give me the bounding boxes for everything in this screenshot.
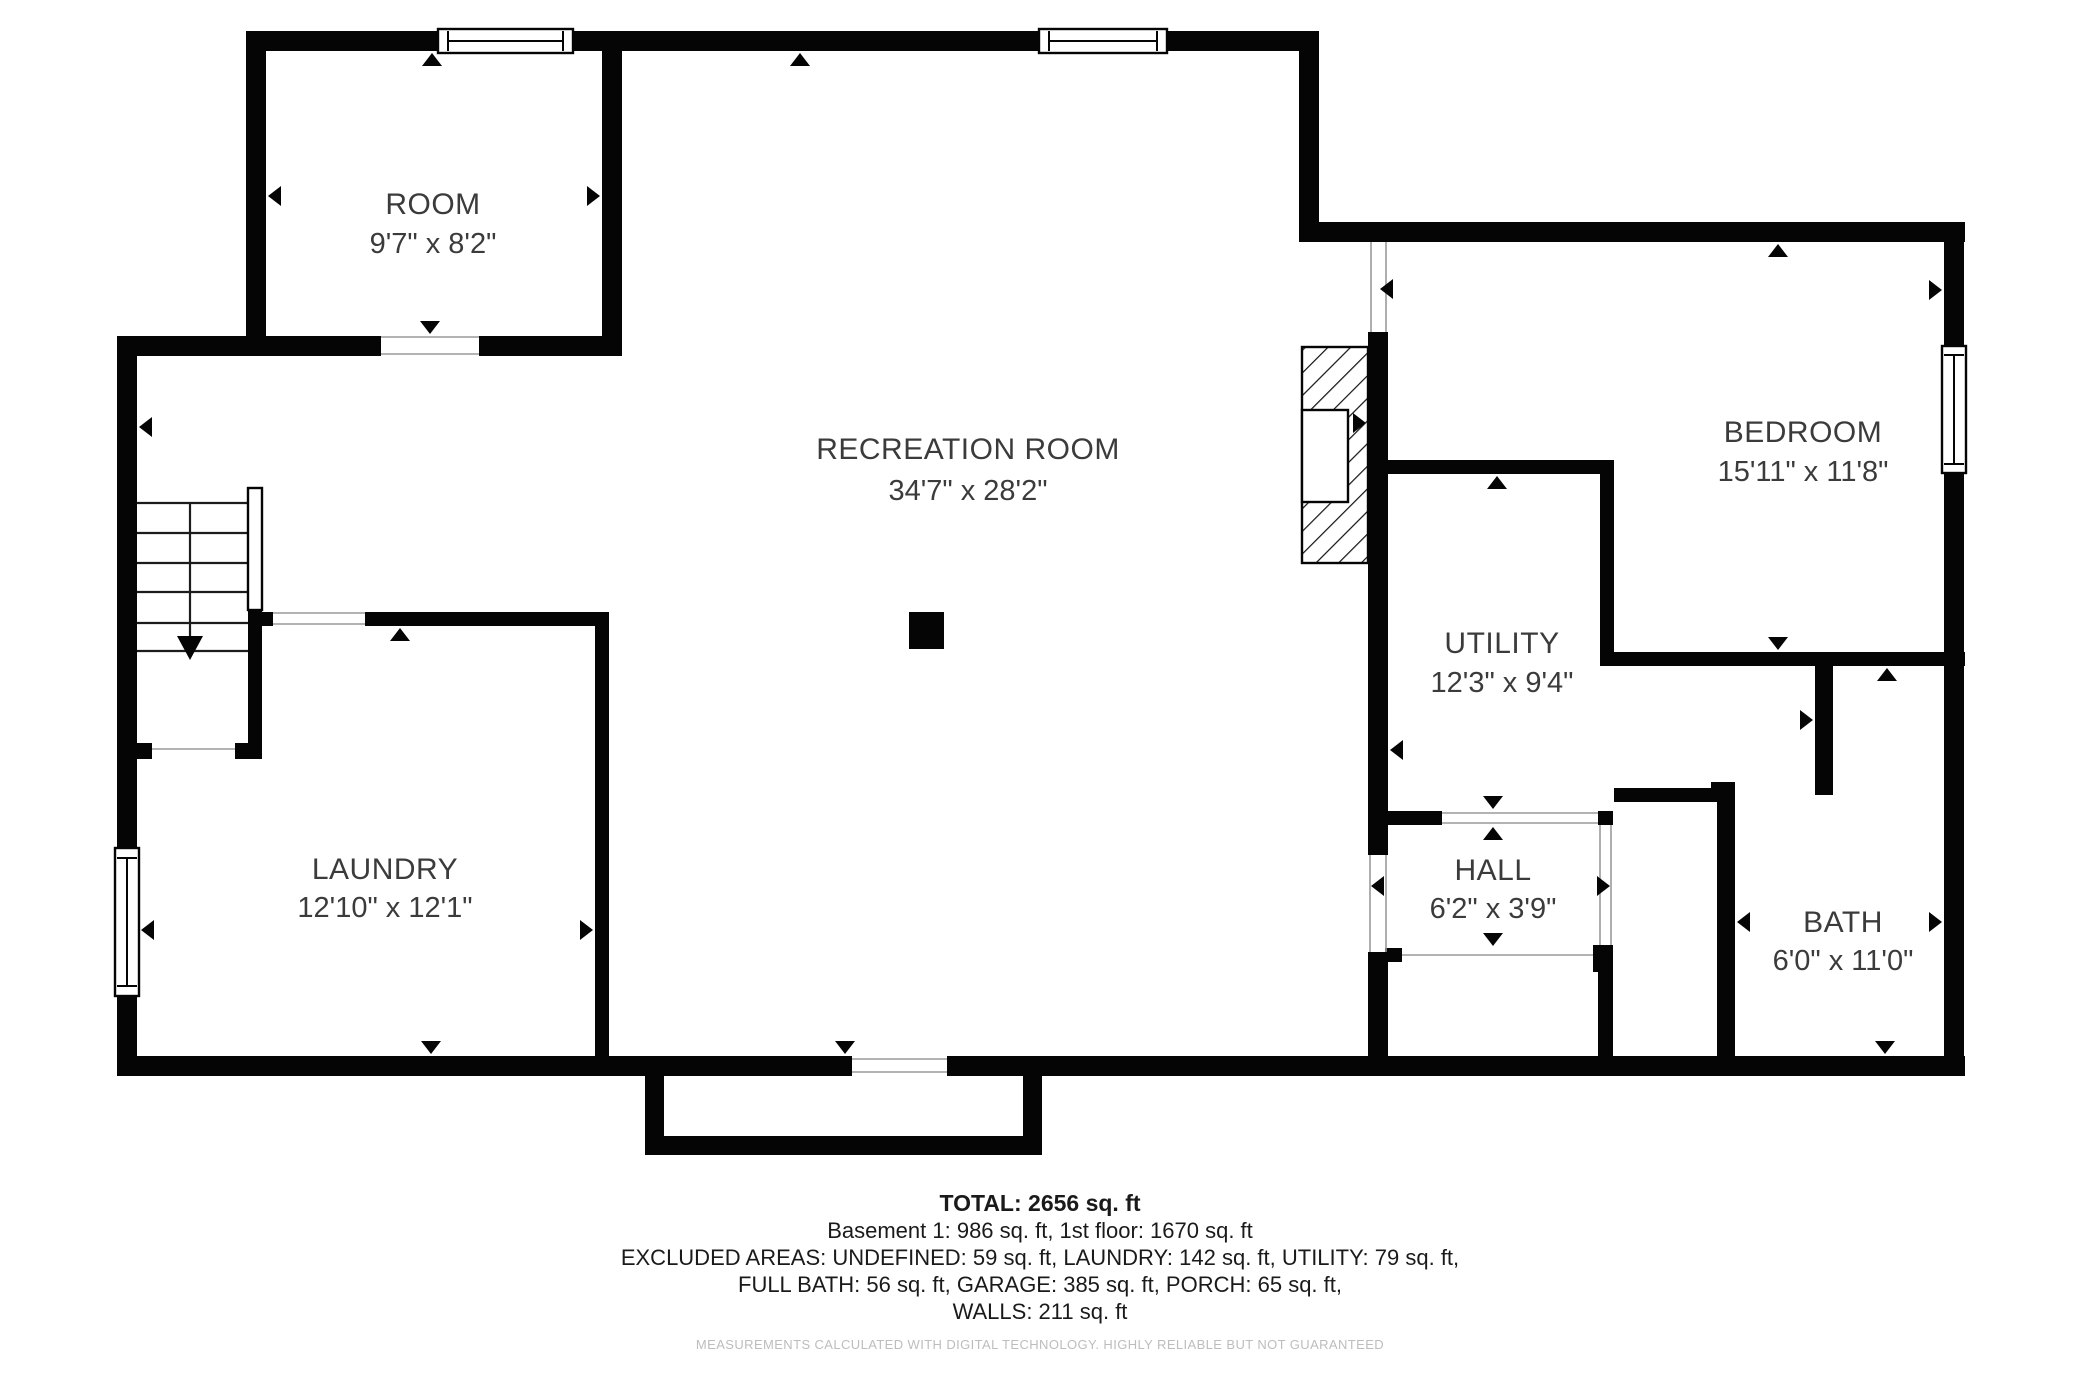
arrow-right <box>1597 876 1610 896</box>
room-labels: ROOM 9'7" x 8'2" RECREATION ROOM 34'7" x… <box>297 188 1913 977</box>
arrow-up <box>390 628 410 641</box>
fireplace <box>1302 347 1368 563</box>
arrow-left <box>268 186 281 206</box>
room-bottom-wall-right <box>479 336 622 356</box>
arrow-right <box>1929 280 1942 300</box>
hall-label: HALL <box>1454 854 1531 887</box>
arrow-down <box>420 321 440 334</box>
laundry-top-wall <box>365 612 609 626</box>
arrow-right <box>1800 710 1813 730</box>
floor-areas: Basement 1: 986 sq. ft, 1st floor: 1670 … <box>0 1217 2080 1244</box>
windows <box>115 29 1966 996</box>
bath-upper-left-wall <box>1815 666 1833 795</box>
porch-right-wall <box>1023 1076 1042 1138</box>
arrow-left <box>141 920 154 940</box>
utility-bedroom-divider <box>1600 460 1614 666</box>
arrow-right <box>587 186 600 206</box>
arrow-left <box>139 417 152 437</box>
arrow-right <box>1929 912 1942 932</box>
divider-wall-mid <box>1368 347 1388 855</box>
room-dimensions: 9'7" x 8'2" <box>370 228 497 260</box>
floor-plan-page: ROOM 9'7" x 8'2" RECREATION ROOM 34'7" x… <box>0 0 2080 1386</box>
arrow-left <box>1737 912 1750 932</box>
arrow-left <box>1390 740 1403 760</box>
recreation-window <box>1039 29 1167 53</box>
room-left-wall <box>246 31 266 356</box>
porch-left-wall <box>645 1076 664 1138</box>
utility-label: UTILITY <box>1444 627 1559 660</box>
arrow-up <box>422 53 442 66</box>
laundry-window <box>115 848 139 996</box>
arrow-down <box>1483 796 1503 809</box>
excluded-areas-1: EXCLUDED AREAS: UNDEFINED: 59 sq. ft, LA… <box>0 1244 2080 1271</box>
hall-bottom-stub <box>1385 948 1402 962</box>
arrow-up <box>790 53 810 66</box>
walls-area: WALLS: 211 sq. ft <box>0 1298 2080 1325</box>
laundry-right-wall <box>595 612 609 1056</box>
bath-left-wall <box>1717 782 1735 1056</box>
bedroom-top-wall <box>1299 222 1965 242</box>
bedroom-dimensions: 15'11" x 11'8" <box>1718 456 1889 488</box>
arrow-down <box>1875 1041 1895 1054</box>
arrow-down <box>1483 933 1503 946</box>
room-label: ROOM <box>385 188 480 221</box>
floor-plan-drawing: ROOM 9'7" x 8'2" RECREATION ROOM 34'7" x… <box>0 0 2080 1386</box>
stair-side-wall <box>248 610 262 745</box>
laundry-label: LAUNDRY <box>312 853 458 886</box>
divider-stub <box>1368 332 1388 347</box>
room-right-wall <box>602 31 622 356</box>
arrow-left <box>1371 876 1384 896</box>
stair-rail <box>248 488 262 610</box>
bedroom-label: BEDROOM <box>1724 416 1883 449</box>
arrow-up <box>1768 244 1788 257</box>
recreation-dimensions: 34'7" x 28'2" <box>888 475 1047 507</box>
laundry-dimensions: 12'10" x 12'1" <box>297 892 472 924</box>
bottom-wall-right <box>947 1056 1965 1076</box>
recreation-label: RECREATION ROOM <box>816 433 1120 466</box>
area-summary: TOTAL: 2656 sq. ft Basement 1: 986 sq. f… <box>0 1190 2080 1353</box>
room-window <box>438 29 573 53</box>
arrow-down <box>835 1041 855 1054</box>
fireplace-firebox <box>1302 410 1348 502</box>
room-bottom-wall-left <box>117 336 381 356</box>
bottom-wall-left <box>117 1056 852 1076</box>
bath-dimensions: 6'0" x 11'0" <box>1773 945 1914 977</box>
stairs <box>137 488 262 660</box>
bedroom-window <box>1942 346 1966 473</box>
arrow-up <box>1483 827 1503 840</box>
support-post <box>909 612 944 649</box>
divider-wall-low <box>1368 952 1388 1056</box>
door-openings <box>152 242 1611 1072</box>
excluded-areas-2: FULL BATH: 56 sq. ft, GARAGE: 385 sq. ft… <box>0 1271 2080 1298</box>
hall-top-wall-left <box>1385 811 1442 825</box>
hall-top-wall-jamb <box>1598 811 1613 825</box>
corridor-top-wall <box>1614 788 1717 802</box>
arrow-down <box>421 1041 441 1054</box>
arrow-up <box>1877 668 1897 681</box>
utility-dimensions: 12'3" x 9'4" <box>1431 667 1574 699</box>
hall-dimensions: 6'2" x 3'9" <box>1430 893 1557 925</box>
arrow-up <box>1487 476 1507 489</box>
step-wall <box>1299 31 1319 242</box>
stair-stub-right <box>235 743 262 759</box>
disclaimer: MEASUREMENTS CALCULATED WITH DIGITAL TEC… <box>0 1337 2080 1353</box>
utility-top-wall <box>1368 460 1614 474</box>
stair-stub-left <box>137 743 152 759</box>
bedroom-bottom-wall <box>1600 652 1965 666</box>
bath-label: BATH <box>1803 906 1883 939</box>
total-area: TOTAL: 2656 sq. ft <box>0 1190 2080 1217</box>
arrow-right <box>580 920 593 940</box>
hall-right-stub <box>1593 945 1613 972</box>
arrow-down <box>1768 637 1788 650</box>
porch-bottom-wall <box>645 1136 1042 1155</box>
stair-down-arrow <box>177 636 203 660</box>
